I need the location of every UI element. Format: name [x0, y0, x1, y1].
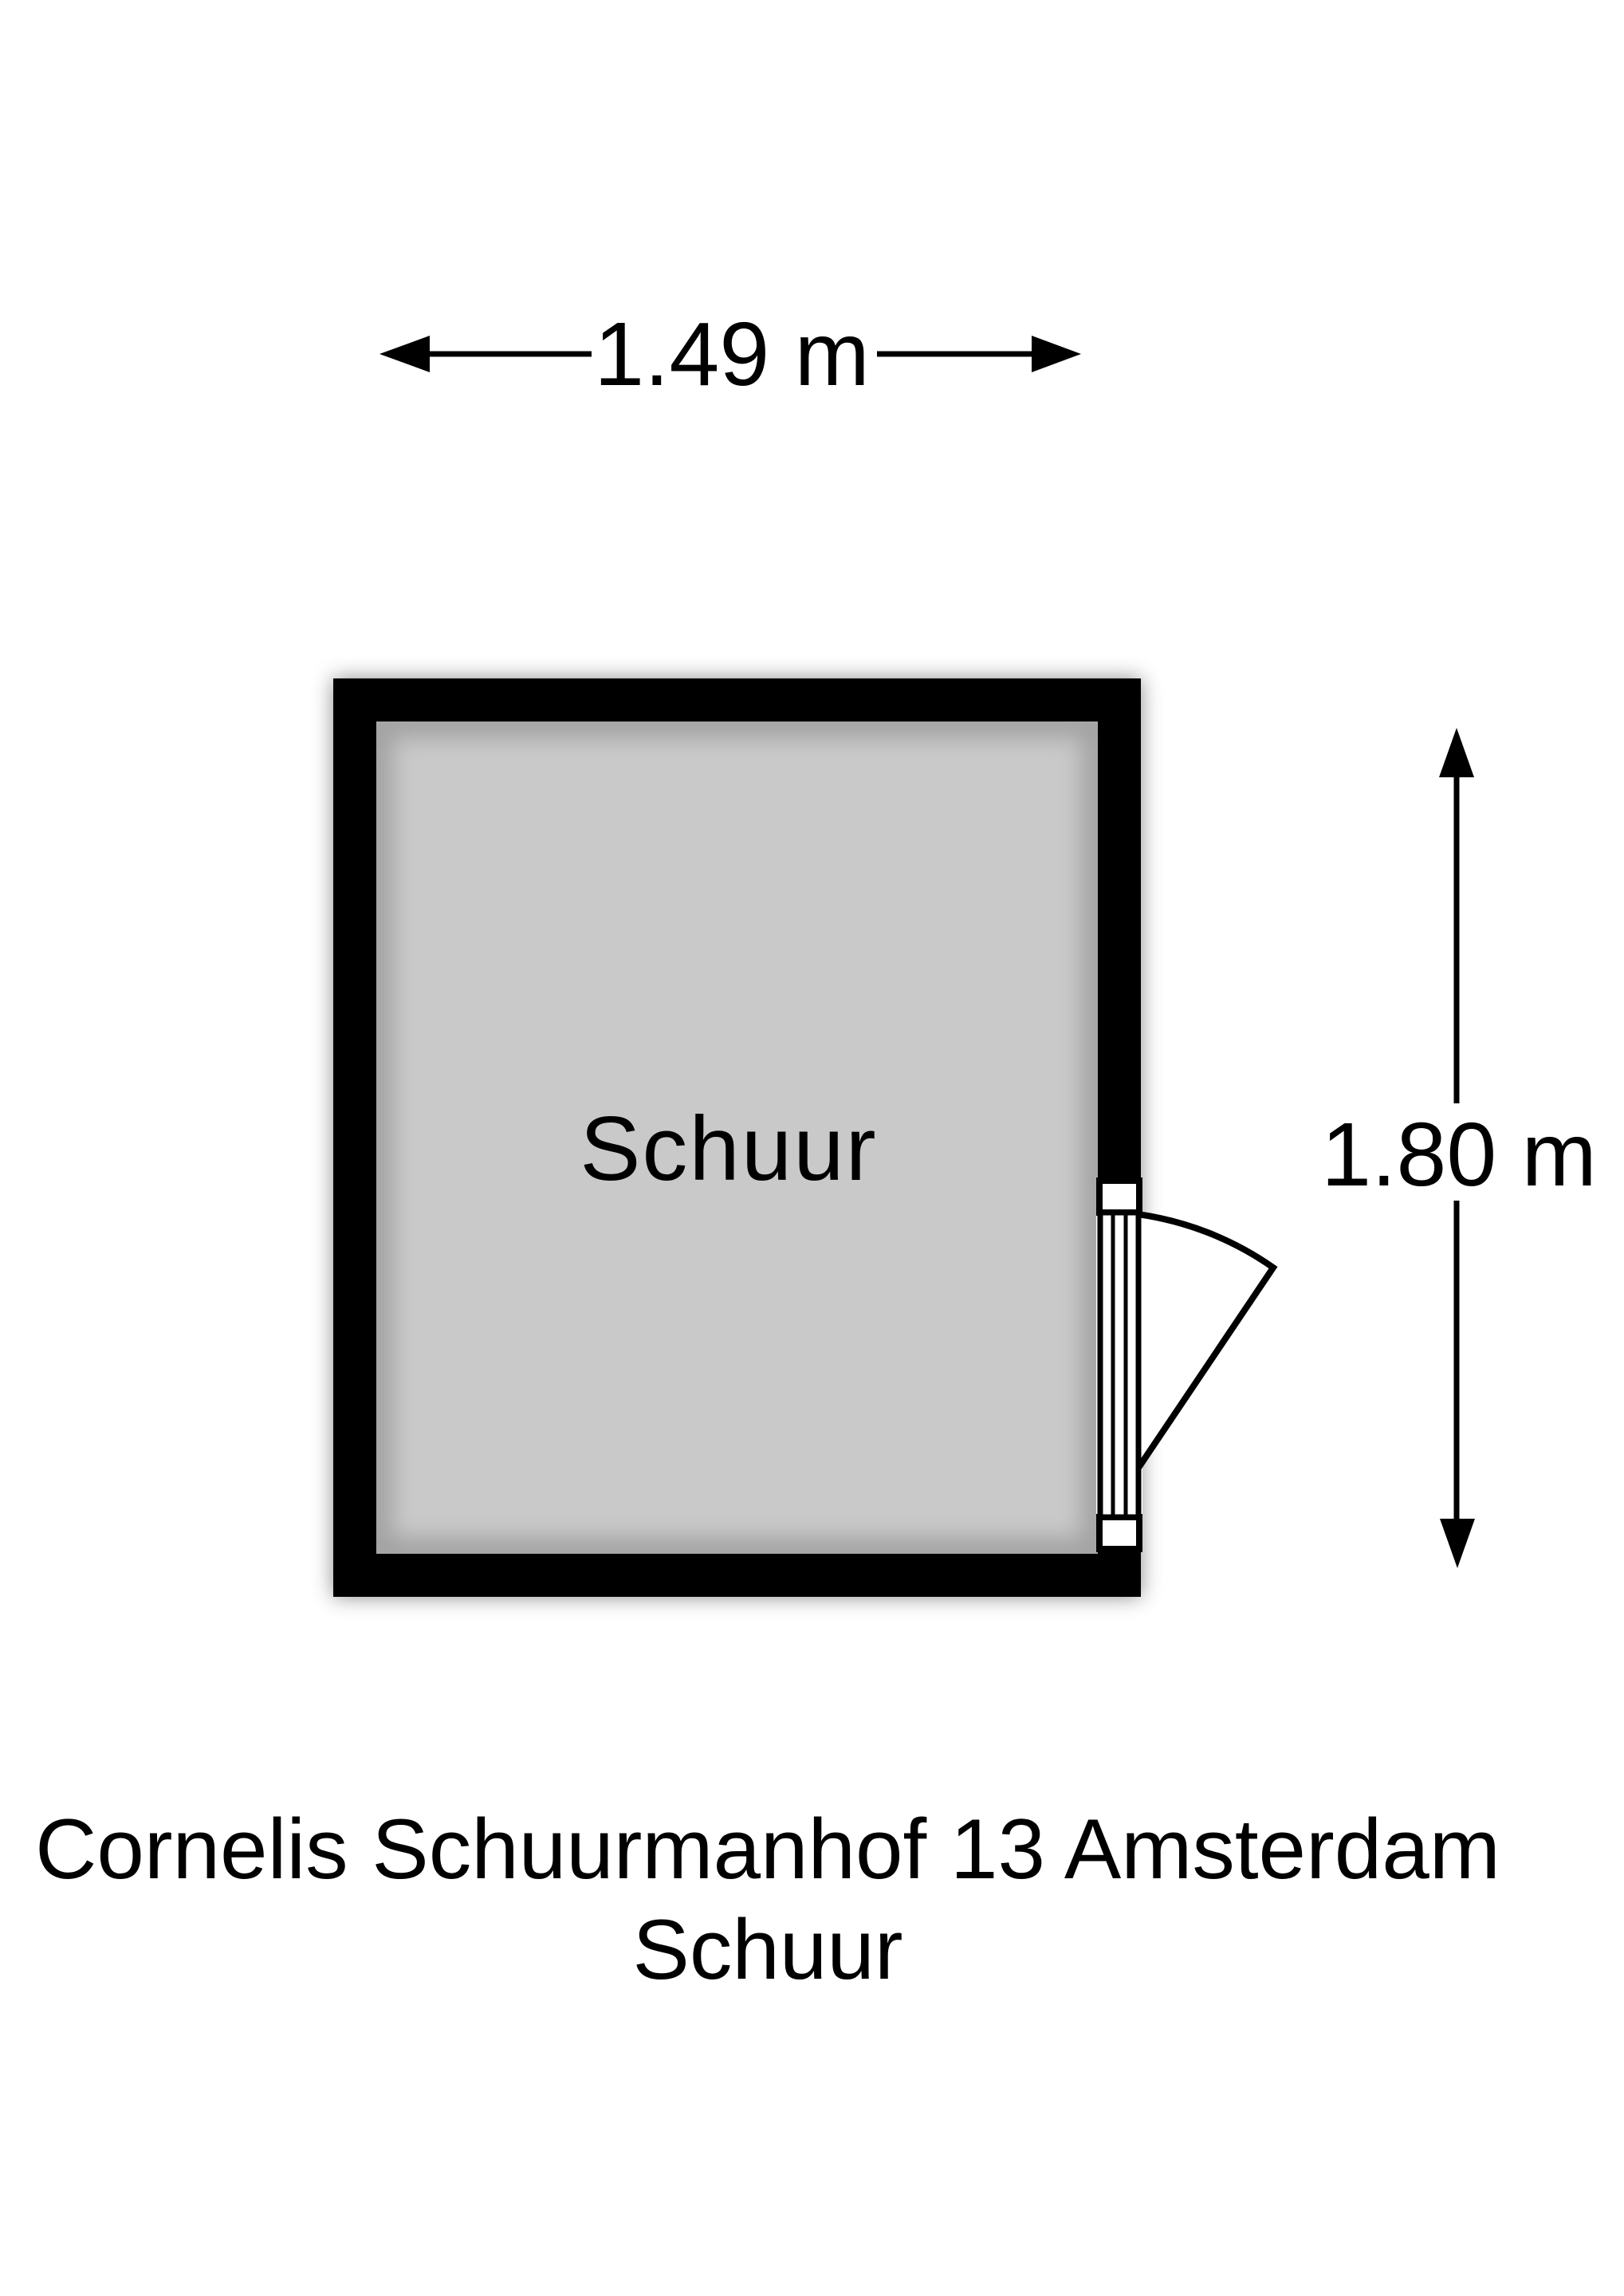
arrow-right-icon — [1032, 336, 1081, 372]
floorplan-canvas: 1.49 m 1.80 m Schuur Cornelis Schuurmanh… — [0, 0, 1624, 2296]
height-dimension: 1.80 m — [1321, 728, 1596, 1568]
arrow-up-icon — [1439, 728, 1474, 777]
caption-address: Cornelis Schuurmanhof 13 Amsterdam — [35, 1799, 1500, 1899]
arrow-down-icon — [1440, 1519, 1475, 1568]
arrow-left-icon — [379, 336, 430, 372]
width-dimension: 1.49 m — [379, 304, 1081, 404]
door-leaf — [1100, 1213, 1138, 1517]
door-jamb-top — [1099, 1181, 1139, 1213]
door-jamb-bottom — [1099, 1517, 1139, 1549]
caption-room-name: Schuur — [35, 1899, 1500, 1999]
room-label: Schuur — [580, 1099, 877, 1200]
width-dimension-label: 1.49 m — [594, 304, 869, 404]
door — [1099, 1181, 1273, 1549]
height-dimension-label: 1.80 m — [1321, 1104, 1596, 1205]
caption: Cornelis Schuurmanhof 13 Amsterdam Schuu… — [35, 1799, 1500, 1999]
